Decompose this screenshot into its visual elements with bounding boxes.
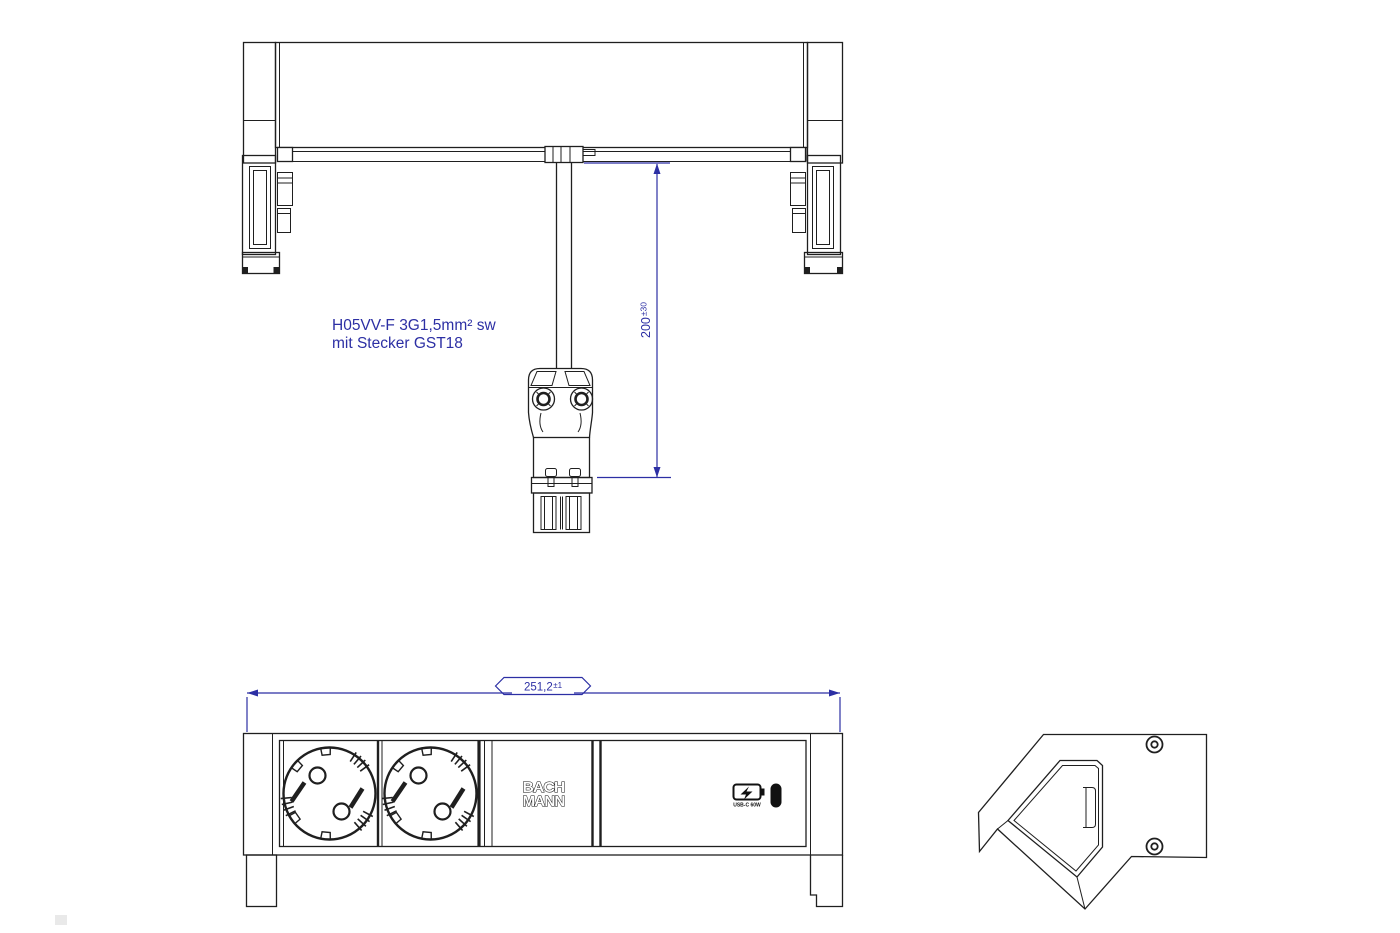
schuko-socket-2 xyxy=(382,747,477,840)
left-clamp-foot xyxy=(243,253,280,275)
dim-arrow-left xyxy=(247,690,258,697)
dim-arrow-right xyxy=(829,690,840,697)
endcap-screw-bottom xyxy=(1147,839,1163,855)
view-front: 251,2±1 BACH MANN xyxy=(244,678,843,907)
battery-charge-icon xyxy=(734,785,765,800)
dim-arrow-down xyxy=(654,467,661,478)
cable-spec-line2: mit Stecker GST18 xyxy=(332,335,463,352)
usb-c-module: USB-C 60W xyxy=(733,784,781,809)
watermark-dot xyxy=(55,915,67,925)
view-side-endcap xyxy=(979,735,1207,910)
usb-wattage-label: USB-C 60W xyxy=(733,803,761,809)
front-right-leg xyxy=(811,855,843,907)
schuko-socket-1 xyxy=(281,747,376,840)
connector-screw-left xyxy=(533,388,555,410)
dimension-overall-width: 251,2±1 xyxy=(247,678,840,733)
endcap-recess-outer xyxy=(1008,761,1103,878)
right-clamp-foot xyxy=(805,253,843,275)
front-left-leg xyxy=(247,855,277,907)
endcap-screw-top xyxy=(1147,737,1163,753)
endcap-latch-tab xyxy=(1083,788,1096,828)
bachmann-logo: BACH MANN xyxy=(523,779,565,810)
bottom-rail xyxy=(278,148,807,162)
connector-screw-right xyxy=(571,388,593,410)
connector-plug-blades xyxy=(534,493,590,533)
cable-spec-line1: H05VV-F 3G1,5mm² sw xyxy=(332,317,496,334)
cable-spec-annotation: H05VV-F 3G1,5mm² sw mit Stecker GST18 xyxy=(332,317,496,352)
logo-line2: MANN xyxy=(523,793,565,810)
gst18-connector xyxy=(529,369,593,533)
housing-body xyxy=(276,43,808,148)
power-cable xyxy=(557,163,572,369)
dimension-cable-length: 200±30 xyxy=(584,163,671,478)
view-unit-with-cable: 200±30 H05VV-F 3G1,5mm² sw mit Stecker G… xyxy=(243,43,843,533)
drawing-canvas: 200±30 H05VV-F 3G1,5mm² sw mit Stecker G… xyxy=(0,0,1400,933)
dim-arrow-up xyxy=(654,164,661,175)
dim-cable-length-label: 200±30 xyxy=(639,302,654,338)
dim-overall-width-label: 251,2±1 xyxy=(524,681,563,694)
usb-c-port xyxy=(771,784,782,808)
cable-gland xyxy=(545,147,595,163)
technical-drawing-page: 200±30 H05VV-F 3G1,5mm² sw mit Stecker G… xyxy=(0,0,1400,933)
